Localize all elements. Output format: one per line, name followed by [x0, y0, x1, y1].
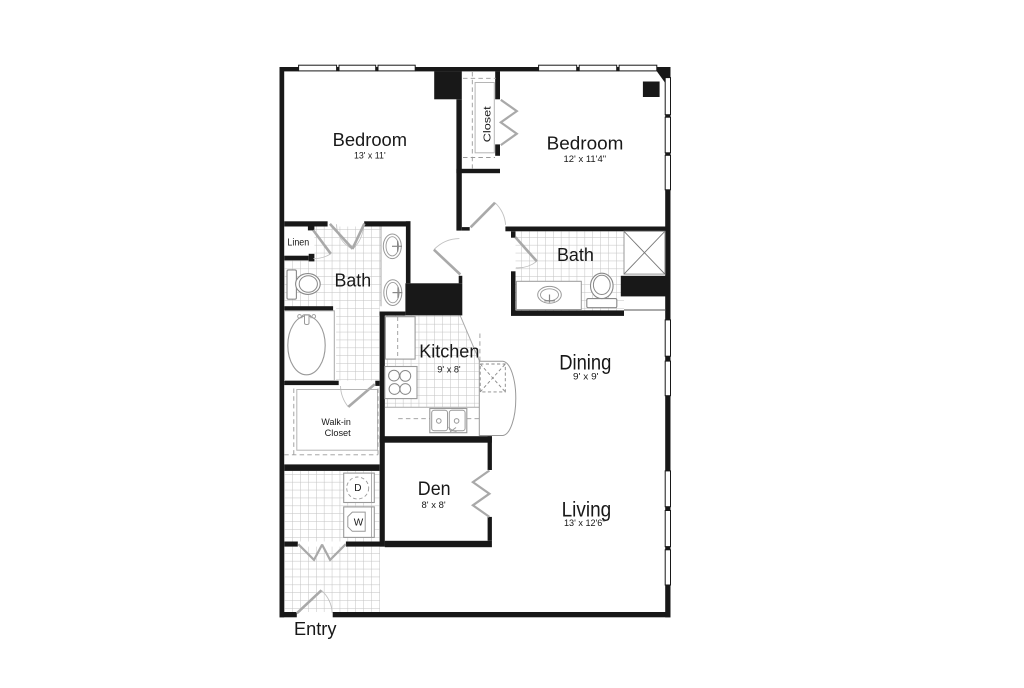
svg-text:Bedroom: Bedroom — [333, 129, 407, 150]
svg-text:W: W — [354, 518, 364, 529]
svg-text:12' x 11'4": 12' x 11'4" — [564, 154, 607, 164]
svg-text:Walk-in: Walk-in — [321, 417, 350, 428]
svg-text:Bath: Bath — [557, 245, 594, 265]
svg-text:Den: Den — [418, 478, 451, 500]
svg-text:13' x 12'6": 13' x 12'6" — [564, 518, 606, 528]
svg-text:13' x 11': 13' x 11' — [354, 151, 386, 161]
svg-text:Bedroom: Bedroom — [547, 133, 624, 154]
svg-text:Bath: Bath — [335, 271, 372, 291]
svg-text:Linen: Linen — [287, 237, 309, 248]
svg-text:9' x 8': 9' x 8' — [437, 365, 461, 375]
svg-text:Entry: Entry — [294, 619, 337, 639]
svg-text:8' x 8': 8' x 8' — [422, 500, 446, 510]
svg-text:Closet: Closet — [481, 106, 493, 142]
svg-text:Kitchen: Kitchen — [419, 342, 479, 362]
svg-text:9' x 9': 9' x 9' — [573, 372, 599, 382]
svg-text:D: D — [354, 483, 361, 494]
svg-text:Closet: Closet — [325, 428, 351, 439]
